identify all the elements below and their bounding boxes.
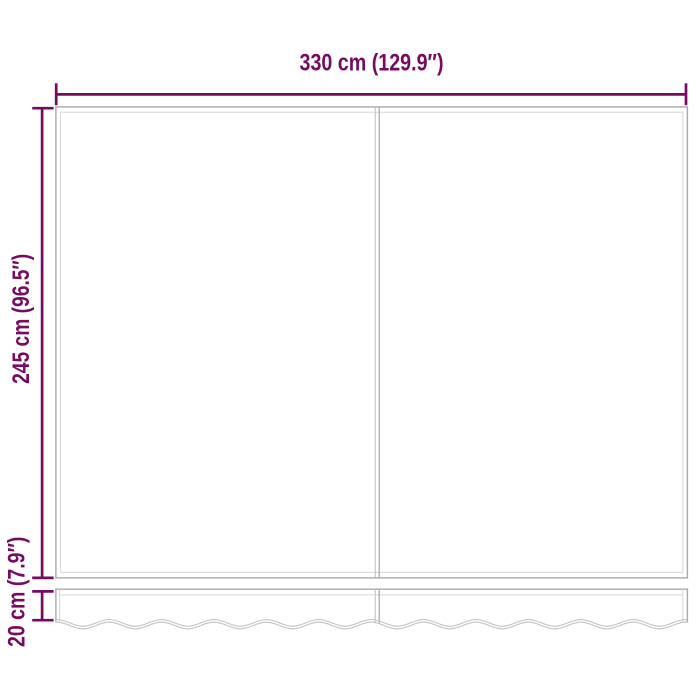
svg-text:245 cm (96.5″): 245 cm (96.5″) <box>8 254 35 384</box>
svg-text:330 cm (129.9″): 330 cm (129.9″) <box>300 50 444 77</box>
svg-text:20 cm (7.9″): 20 cm (7.9″) <box>4 537 31 648</box>
